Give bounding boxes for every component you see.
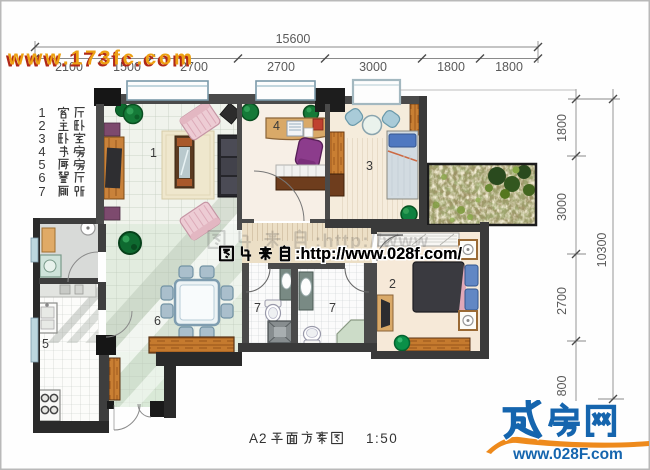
svg-text:3000: 3000 xyxy=(555,193,569,221)
svg-text:2700: 2700 xyxy=(267,60,295,74)
svg-text:A2: A2 xyxy=(249,431,268,446)
svg-text:7: 7 xyxy=(38,184,45,199)
svg-text:1800: 1800 xyxy=(437,60,465,74)
svg-text::http://www.028f.com/: :http://www.028f.com/ xyxy=(295,245,462,263)
svg-text:1800: 1800 xyxy=(555,114,569,142)
svg-text:15600: 15600 xyxy=(276,32,311,46)
svg-text:www.028F.com: www.028F.com xyxy=(512,446,623,463)
svg-text:3000: 3000 xyxy=(359,60,387,74)
svg-text:7: 7 xyxy=(329,301,336,315)
svg-text:10300: 10300 xyxy=(595,233,609,268)
svg-text:4: 4 xyxy=(273,119,280,133)
svg-text:www.173fc.com: www.173fc.com xyxy=(7,47,195,70)
svg-text:6: 6 xyxy=(154,314,161,328)
svg-text:1: 1 xyxy=(150,146,157,160)
svg-text:1:50: 1:50 xyxy=(366,431,398,446)
svg-text:800: 800 xyxy=(555,376,569,397)
svg-text:2700: 2700 xyxy=(555,287,569,315)
svg-text:3: 3 xyxy=(366,159,373,173)
svg-text:7: 7 xyxy=(254,301,261,315)
svg-text:1800: 1800 xyxy=(495,60,523,74)
svg-text:6: 6 xyxy=(38,170,45,185)
svg-text:2: 2 xyxy=(389,277,396,291)
svg-text:5: 5 xyxy=(42,337,49,351)
